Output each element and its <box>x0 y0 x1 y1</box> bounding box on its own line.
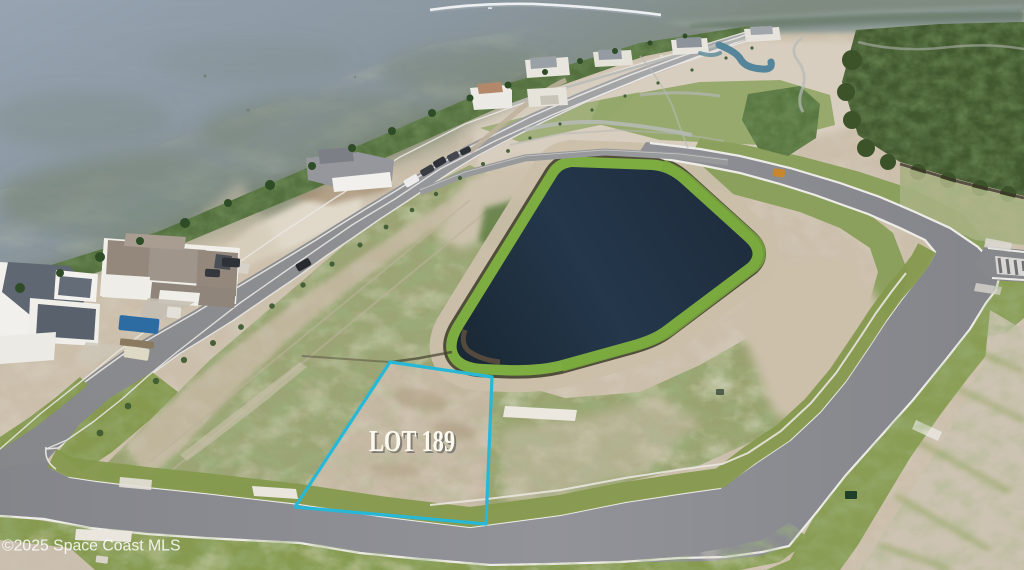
svg-text:©2025 Space Coast MLS: ©2025 Space Coast MLS <box>2 538 181 555</box>
svg-text:LOT 189: LOT 189 <box>369 423 455 458</box>
